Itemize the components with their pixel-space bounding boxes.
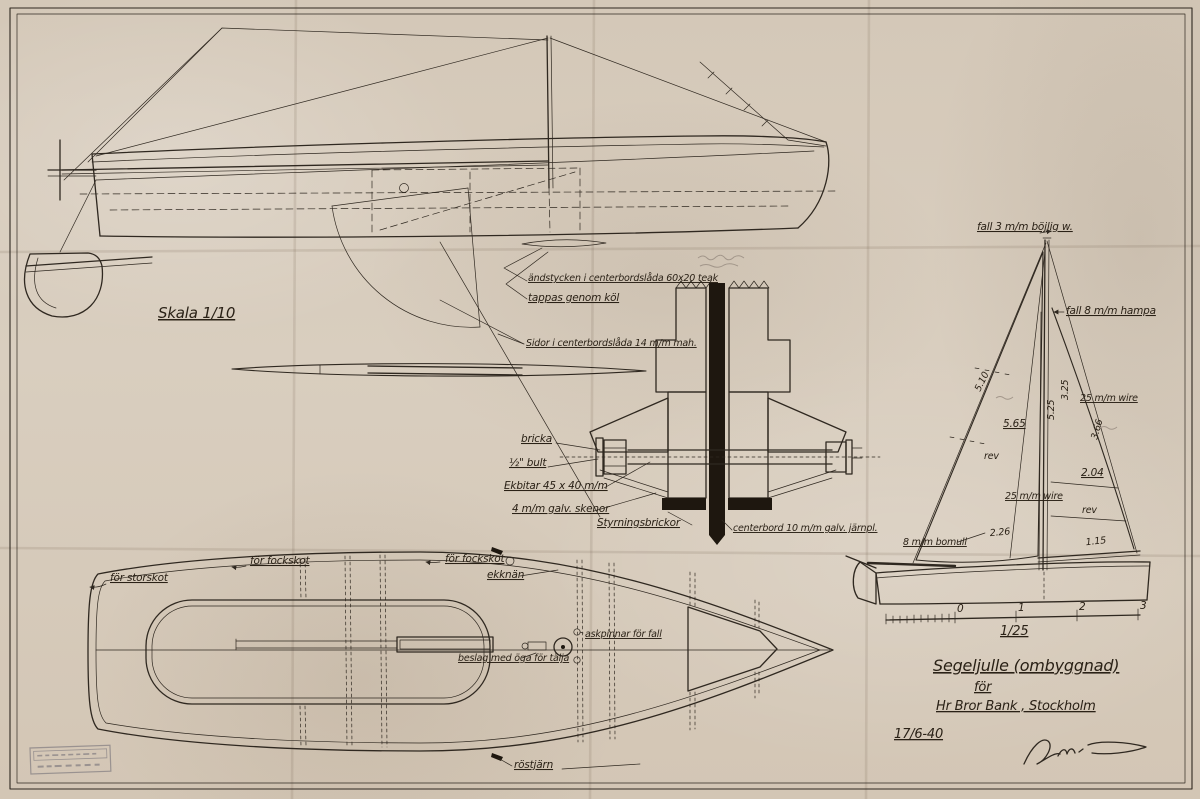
scale-tick-2: 2 — [1079, 601, 1086, 613]
title-block: Segeljulle (ombyggnad) för Hr Bror Bank … — [894, 656, 1146, 764]
plan-leaders — [498, 570, 640, 769]
label-ekbitar: Ekbitar 45 x 40 m/m — [504, 480, 608, 492]
cb-pivot — [400, 184, 409, 193]
title-line1: Segeljulle (ombyggnad) — [933, 656, 1119, 675]
jib-luff-line — [916, 252, 1043, 560]
label-fockskot-a: för fockskot — [250, 555, 311, 567]
sail-rudder — [853, 562, 876, 604]
jib-hanks — [708, 72, 768, 126]
keel-cheek-right — [729, 392, 768, 498]
drawing-canvas: Skala 1/10 — [0, 0, 1200, 799]
label-bricka: bricka — [521, 433, 552, 445]
archive-stamp — [30, 745, 111, 774]
oak-wedge-left — [590, 398, 668, 452]
waterline — [80, 191, 838, 194]
scale-tick-0: 0 — [957, 603, 964, 615]
label-115: 1.15 — [1085, 535, 1107, 548]
label-storskot: för storskot — [110, 572, 169, 584]
sail-scale-label: 1/25 — [1000, 624, 1028, 639]
label-tappas: tappas genom köl — [528, 292, 619, 304]
stem — [798, 142, 829, 228]
label-skenor: 4 m/m galv. skenor — [512, 503, 610, 515]
scale-tick-1: 1 — [1018, 602, 1024, 614]
label-fall-top: fall 3 m/m böjlig w. — [977, 221, 1073, 233]
deck-beams — [300, 555, 759, 747]
centerboard-plate — [709, 283, 725, 545]
label-525: 5.25 — [1046, 399, 1057, 420]
ash-pin-1 — [574, 629, 580, 635]
oak-wedge-right — [768, 398, 846, 452]
reef-band-2 — [1051, 516, 1126, 521]
paper-creases — [0, 0, 1200, 799]
jib-stay-line — [700, 62, 826, 146]
rudder-assembly — [25, 140, 152, 317]
guide-plate-left — [662, 498, 706, 510]
label-centerbord: centerbord 10 m/m galv. järnpl. — [733, 523, 877, 534]
forestay-line — [550, 38, 826, 142]
label-askpinnar: askpinnar för fall — [585, 629, 662, 640]
sail-scale-bar: 0 1 2 3 1/25 — [886, 600, 1146, 639]
eye-ring — [522, 643, 528, 649]
label-styrning: Styrningsbrickor — [597, 517, 681, 529]
label-366: 3.66 — [1089, 418, 1105, 441]
label-226: 2.26 — [989, 526, 1010, 539]
title-line2: för — [974, 680, 993, 695]
label-rev-jib: rev — [984, 451, 999, 462]
mast-below-deck — [549, 188, 550, 232]
stringer-line — [96, 151, 814, 180]
plan-view: för storskot för fockskot för fockskot e… — [88, 547, 833, 771]
label-beslag: beslag med öga för tälja — [458, 653, 569, 664]
halyard-fitting — [528, 642, 546, 650]
sail-mast — [1043, 240, 1045, 570]
keel-cheek-left — [668, 392, 706, 498]
scale-tick-3: 3 — [1140, 600, 1146, 612]
section-detail — [440, 242, 880, 545]
label-rev-main: rev — [1082, 505, 1097, 516]
scale-label: Skala 1/10 — [158, 304, 235, 322]
label-565: 5.65 — [1003, 418, 1026, 430]
fock-sheet-ring — [506, 557, 514, 565]
jib-leech-line — [1038, 252, 1043, 556]
label-fockskot-b: för fockskot — [445, 553, 506, 565]
reef-band-1 — [1051, 482, 1118, 488]
jib-foot-line — [916, 556, 1038, 562]
label-bult: ½" bult — [509, 457, 547, 469]
leader-sidor — [440, 300, 524, 344]
label-endpieces: ändstycken i centerbordslåda 60x20 teak — [528, 273, 719, 284]
sail-plan: fall 3 m/m böjlig w. fall 8 m/m hampa 3.… — [846, 221, 1156, 639]
signature — [1024, 740, 1146, 764]
sail-forestay — [913, 243, 1046, 563]
blueprint-sheet: Skala 1/10 — [0, 0, 1200, 799]
label-325: 3.25 — [1060, 379, 1071, 400]
jib-club-spar — [868, 563, 955, 566]
section-labels: ändstycken i centerbordslåda 60x20 teak … — [504, 273, 877, 534]
label-bomull: 8 m/m bomull — [903, 537, 967, 548]
keel-line — [100, 228, 798, 237]
trunk-side-right — [729, 288, 790, 392]
label-ekknan: ekknän — [487, 569, 524, 581]
label-wire-top: 25 m/m wire — [1080, 393, 1138, 404]
backstay-line — [96, 38, 548, 156]
title-line3: Hr Bror Bank , Stockholm — [936, 699, 1096, 714]
halyard-line — [88, 28, 548, 162]
label-510: 5.10 — [973, 370, 992, 393]
transom — [92, 154, 100, 236]
label-204: 2.04 — [1081, 467, 1104, 479]
ash-pin-2 — [574, 657, 580, 663]
label-sidor: Sidor i centerbordslåda 14 m/m mah. — [526, 338, 697, 349]
rudder-blade — [25, 253, 103, 317]
label-rostjarn: röstjärn — [514, 759, 553, 771]
title-date: 17/6-40 — [894, 727, 943, 742]
label-fall-hampa: fall 8 m/m hampa — [1066, 305, 1156, 317]
guide-plate-right — [728, 498, 772, 510]
sheer-line — [92, 136, 826, 154]
label-wire-left: 25 m/m wire — [1005, 491, 1063, 502]
